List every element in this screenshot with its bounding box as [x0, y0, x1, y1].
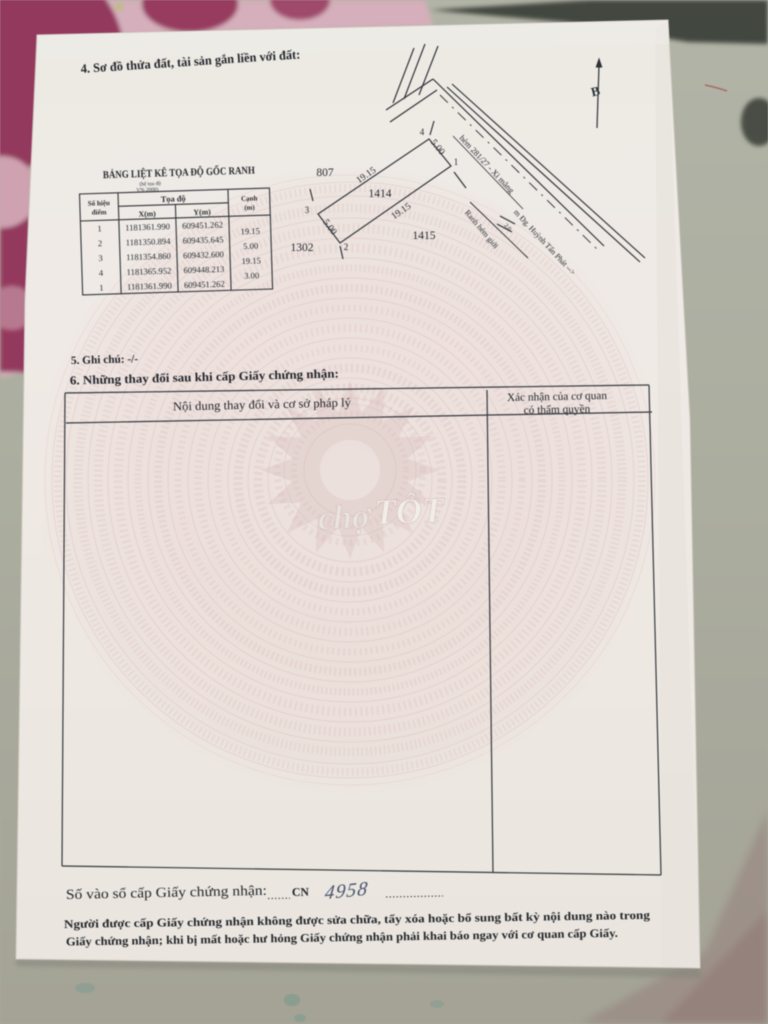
svg-text:1181361.990: 1181361.990: [125, 221, 170, 232]
svg-text:3: 3: [98, 253, 103, 263]
svg-text:Cạnh: Cạnh: [241, 194, 258, 203]
svg-text:4: 4: [420, 127, 425, 137]
svg-text:609451.262: 609451.262: [184, 279, 225, 290]
svg-text:1181361.990: 1181361.990: [127, 280, 172, 291]
svg-text:CN: CN: [292, 885, 310, 899]
svg-text:609448.213: 609448.213: [183, 264, 224, 275]
svg-text:1: 1: [99, 282, 104, 292]
svg-text:1415: 1415: [413, 230, 436, 242]
svg-text:(m): (m): [244, 203, 255, 211]
svg-text:TỐT: TỐT: [373, 489, 446, 532]
svg-text:Tọa độ: Tọa độ: [161, 194, 186, 204]
svg-text:3: 3: [305, 205, 310, 215]
svg-text:1: 1: [97, 223, 102, 233]
svg-text:19.15: 19.15: [241, 255, 261, 266]
svg-text:807: 807: [316, 167, 334, 179]
svg-text:1: 1: [454, 157, 459, 167]
svg-text:1414: 1414: [369, 188, 392, 200]
svg-text:chợ: chợ: [317, 498, 372, 537]
svg-text:609435.645: 609435.645: [182, 234, 223, 245]
svg-text:1181365.952: 1181365.952: [126, 266, 171, 277]
svg-text:2: 2: [344, 242, 349, 252]
svg-text:5. Ghi chú: -/-: 5. Ghi chú: -/-: [71, 353, 139, 367]
svg-text:điểm: điểm: [92, 208, 107, 216]
svg-text:5.00: 5.00: [243, 241, 258, 251]
svg-text:2: 2: [98, 238, 103, 248]
svg-text:Số hiệu: Số hiệu: [88, 199, 110, 208]
svg-text:có thẩm quyền: có thẩm quyền: [524, 403, 591, 416]
svg-text:1302: 1302: [291, 242, 314, 254]
svg-text:X(m): X(m): [138, 209, 156, 219]
svg-text:1181350.894: 1181350.894: [125, 236, 171, 247]
svg-text:Y(m): Y(m): [193, 207, 211, 217]
svg-text:19.15: 19.15: [240, 226, 260, 237]
svg-text:609451.262: 609451.262: [182, 220, 223, 231]
svg-text:1181354.860: 1181354.860: [126, 251, 171, 262]
svg-text:609432.600: 609432.600: [183, 249, 224, 260]
svg-text:Xác nhận của cơ quan: Xác nhận của cơ quan: [507, 390, 608, 404]
svg-text:3.00: 3.00: [244, 270, 259, 280]
